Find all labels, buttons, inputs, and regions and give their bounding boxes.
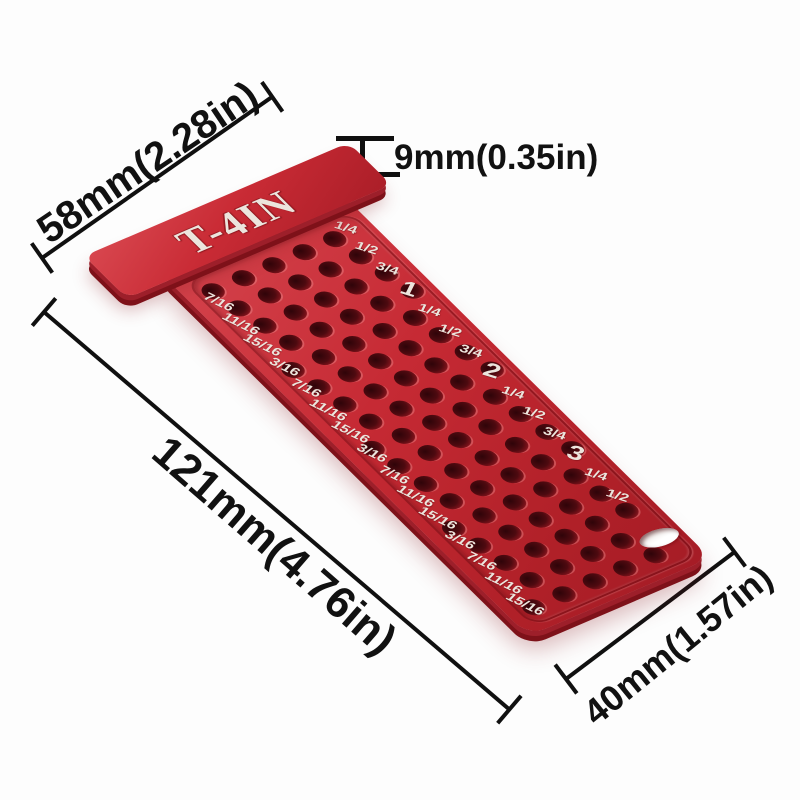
extent-top-bar bbox=[336, 136, 394, 141]
t-square-tool: 1/41/23/411/41/23/421/41/23/431/41/27/16… bbox=[84, 143, 752, 654]
dimension-label-lip-thickness: 9mm(0.35in) bbox=[394, 138, 598, 178]
product-photo: 58mm(2.28in) 9mm(0.35in) 121mm(4.76in) 4… bbox=[0, 0, 800, 800]
